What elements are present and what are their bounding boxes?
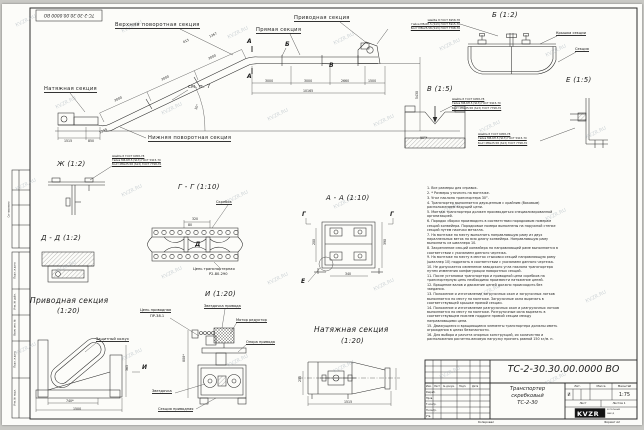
label-tension-section: Натяжная секция [44,86,97,93]
tb-col-list: Лист [434,385,440,388]
title-block-sheet: Лист [565,401,601,405]
format-label: Формат А2 [604,420,620,424]
label-drive-chain-2: ПР-38.1 [150,314,164,318]
dim-horiz-1: 3000 [265,79,273,83]
dim-255: 255 [298,376,302,382]
margin-label-2: Инв. № дубл. [14,288,17,316]
margin-label-4: Подп. и дата [14,346,17,374]
label-drive-section: Приводная секция [294,15,350,22]
section-letter-g-right: Г [390,211,394,218]
tb-row-nkontr: Н.контр. [426,409,437,412]
detail-letter-b-marker: Б [285,41,290,48]
note-item: 5. Монтаж транспортера должен производит… [427,210,561,219]
fastener-bolt-2: Болт М8х25.58 (S13) ГОСТ 7798-70 [112,162,161,166]
tb-row-prov: Пров. [426,397,433,400]
tension-section-title: Натяжная секция [314,325,389,334]
label-straight-section: Прямая секция [256,27,301,34]
detail-e [540,98,608,148]
tension-section-scale: (1:20) [341,337,364,345]
title-block-name-1: Транспортер [490,386,565,392]
section-letter-d: Д [195,241,200,248]
tb-col-dokum: № докум. [443,385,455,388]
title-block-scale-value: 1:75 [612,392,637,398]
note-item: 12. Вращение валов и движение цепей долж… [427,283,561,292]
view-letter-i-marker: И [142,364,147,371]
tb-row-razrab: Разраб. [426,391,435,394]
logo-subtext-2: ЗАВОД [607,413,614,415]
note-item: 10. Не допускается изменение заводского … [427,265,561,274]
title-block-col-mass: Масса [590,384,612,388]
drive-section-scale: (1:20) [57,307,80,315]
label-see-note-7: см. п. 7 [188,84,210,90]
tb-col-data: Дата [472,385,478,388]
label-sprocket: Звездочка [152,389,172,394]
note-item: 14. Положение и изготовление разгрузочны… [427,306,561,323]
detail-e-title: Е (1:5) [566,76,591,84]
section-letter-a-top: А [247,38,252,45]
copied-label: Копировал [478,420,494,424]
label-lower-turn-section: Нижняя поворотная секция [148,135,231,142]
margin-label-1: Подп. и дата [14,257,17,285]
title-block-col-lit: Лит. [565,384,590,388]
note-item: 3. Угол наклона транспортера 30°. [427,196,561,200]
label-drive-support: Опора привода [246,340,275,345]
title-block-sheets: Листов 1 [601,401,637,405]
dim-horiz-2: 3000 [304,79,312,83]
label-motor-reducer: Мотор редуктор [236,318,267,323]
title-block-name-2: скребковый [490,393,565,399]
detail-v [405,106,465,148]
section-dd-title: Д - Д (1:2) [41,234,81,242]
drive-section-title: Приводная секция [30,296,108,305]
note-item: 16. Для выбора и расчета опорных констру… [427,333,561,342]
margin-label-agreed: Согласовано [8,196,11,224]
note-item: 6. Порядок сборки производить в соответс… [427,219,561,232]
side-view [55,22,460,140]
section-gg [148,205,243,268]
section-dd [42,252,94,282]
note-item: 11. После установки транспортера и приво… [427,274,561,283]
detail-zh-title: Ж (1:2) [57,160,86,168]
label-drive-chain-1: Цепь приводная [140,308,171,313]
fastener-bolt-3: Болт М8х25.58 (S13) ГОСТ 7798-70 [452,106,501,110]
dim-320: 320 [192,217,198,221]
note-item: 1. Все размеры для справок. [427,186,561,190]
margin-label-5: Инв. № подл. [14,384,17,412]
detail-zh [48,166,112,215]
detail-v-title: В (1:5) [427,85,453,93]
note-item: 4. Транспортер выполняется двухцепным с … [427,201,561,210]
fastener-bolt-4: Болт М8х25.58 (S13) ГОСТ 7798-70 [478,141,527,145]
section-letter-a-bottom: А [247,73,252,80]
tb-row-utv: Утв. [426,415,431,418]
dim-horiz-4: 1500 [368,79,376,83]
detail-letter-e-marker: Е [301,278,305,285]
dim-365: 365 [125,365,129,371]
section-gg-title: Г - Г (1:10) [178,183,220,191]
note-item: 9. На монтаже по месту в местах стыковки… [427,255,561,264]
detail-letter-v-marker: В [329,62,334,69]
dim-1515-tension: 1515 [344,400,352,404]
kvzr-logo: KVZR [577,410,599,418]
dim-horiz-3: 2660 [341,79,349,83]
tb-col-podp: Подп. [459,385,466,388]
drive-section-view [36,334,140,412]
title-block-col-scale: Масштаб [612,384,637,388]
dim-1500: 1500 [73,407,81,411]
dim-80: 80 [188,223,192,227]
dim-aa-left: 200 [312,239,316,245]
view-i-title: И (1:20) [205,290,236,298]
dim-850: 850 [88,139,94,143]
label-conveyor-chain-2: Р2-80-290 [209,272,227,276]
title-block-lit-value: И [565,392,573,397]
dim-1515-base: 1515 [64,139,72,143]
note-item: 13. Положение и изготовление загрузочных… [427,292,561,305]
section-aa-title: А - А (1:10) [326,194,370,202]
logo-subtext-1: КОТЕЛЬНЫЙ [607,409,620,411]
label-protective-casing: Защитный кожух [96,337,129,342]
title-block-name-3: ТС-2-30 [490,400,565,406]
tb-col-izm: Изм. [426,385,432,388]
dim-total-10165: 10165 [303,89,313,93]
dim-90deg: 90°* [420,136,427,140]
label-drive-sprocket: Звездочка привода [204,304,241,309]
label-conveyor-chain-1: Цепь транспортерная [193,267,235,271]
section-letter-g-left: Г [302,211,306,218]
detail-b-title: Б (1:2) [492,11,518,19]
note-item: 2. * Размеры уточнить на монтаже. [427,191,561,195]
dim-height-5430: 5430 [415,91,419,99]
margin-label-3: Взам. инв. № [14,314,17,342]
fastener-bolt-1: Болт М8х25.58 (S13) ГОСТ 7798-70 [388,26,460,30]
title-block-doc-number: ТС-2-30.30.00.0000 ВО [490,364,637,375]
tb-row-tkontr: Т.контр. [426,403,436,406]
dim-aa-bottom: 340 [345,272,351,276]
label-section-cover: Крышка секции [556,31,586,36]
label-section: Секция [575,47,589,52]
dim-808: 808* [182,354,186,362]
note-item: 8. Закрепление секций конвейера на напра… [427,246,561,255]
note-item: 15. Движущиеся и вращающиеся элементы тр… [427,324,561,333]
label-scraper: Скребок [216,200,232,205]
label-upper-turn-section: Верхняя поворотная секция [115,22,200,29]
dim-740: 740* [66,399,74,403]
label-drive-section-name: Секция приводная [158,407,193,412]
note-item: 7. На монтаже по месту выполнить направл… [427,233,561,246]
technical-notes: 1. Все размеры для справок.2. * Размеры … [427,186,561,342]
dim-aa-right: 390 [383,239,387,245]
top-stamp-doc-number: ТС-2-30.30.00.0000 ВО [37,12,101,17]
